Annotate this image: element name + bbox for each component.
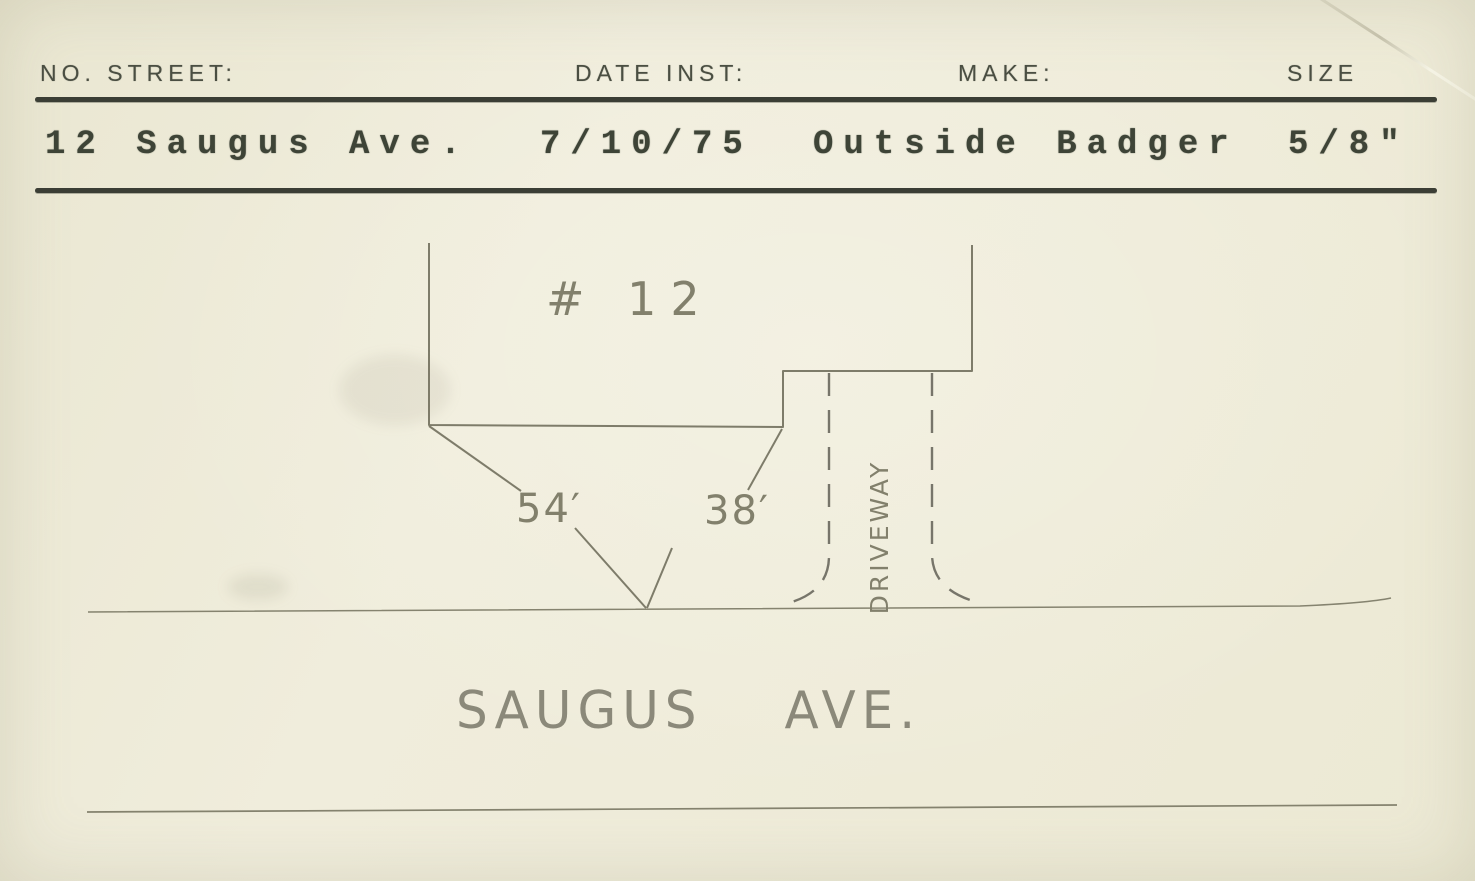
measure-line-54-upper: [429, 426, 521, 491]
house-outline: [429, 243, 972, 427]
street-name-label: SAUGUS AVE.: [456, 680, 921, 740]
measurement-54-label: 54′: [516, 486, 582, 532]
measure-line-38-upper: [748, 429, 782, 490]
plot-sketch-drawing: [0, 0, 1475, 881]
card-bottom-line: [87, 805, 1397, 812]
house-number-label: # 12: [546, 272, 714, 326]
record-card: NO. STREET: DATE INST: MAKE: SIZE 12 Sau…: [0, 0, 1475, 881]
street-line: [88, 598, 1391, 612]
driveway-label: DRIVEWAY: [865, 452, 897, 622]
measure-line-54-lower: [575, 528, 646, 608]
driveway-edge-left: [792, 373, 829, 602]
measurement-38-label: 38′: [704, 488, 770, 534]
driveway-edge-right: [932, 373, 973, 601]
measure-line-38-lower: [647, 548, 672, 608]
